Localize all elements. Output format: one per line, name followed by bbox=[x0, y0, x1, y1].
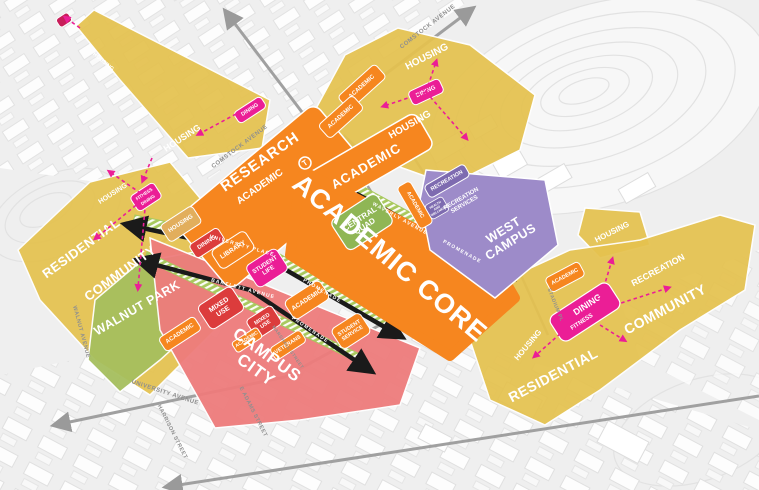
diagram-canvas: CENTRALQUAD ACADEMIC HOUSING DINING LIBR… bbox=[0, 0, 759, 490]
campus-framework-diagram: CENTRALQUAD ACADEMIC HOUSING DINING LIBR… bbox=[0, 0, 759, 490]
